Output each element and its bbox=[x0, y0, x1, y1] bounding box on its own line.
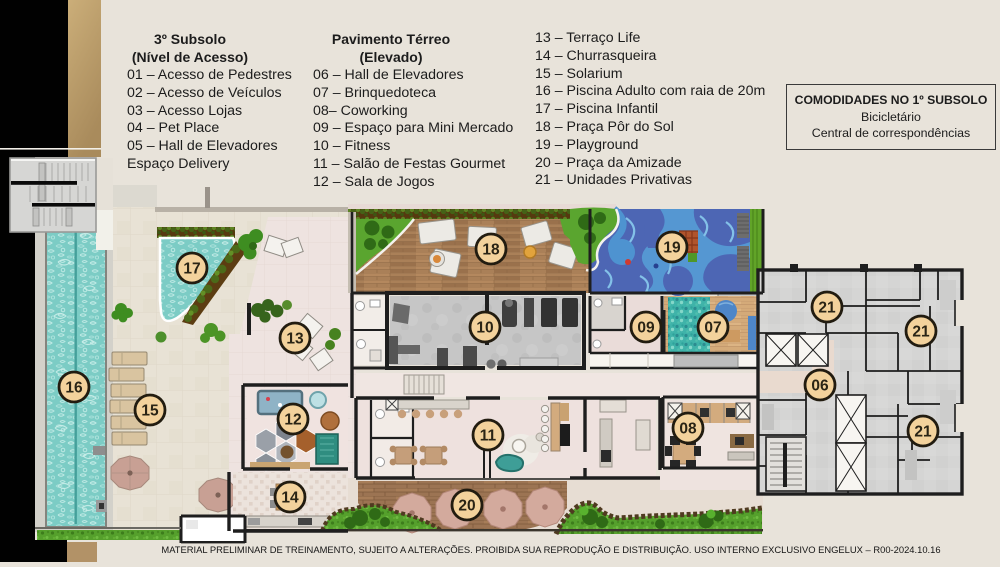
svg-text:18: 18 bbox=[482, 242, 500, 259]
svg-text:06: 06 bbox=[811, 378, 829, 395]
svg-text:21: 21 bbox=[818, 300, 836, 317]
svg-text:14: 14 bbox=[281, 490, 299, 507]
svg-text:08: 08 bbox=[679, 421, 697, 438]
svg-text:09: 09 bbox=[637, 320, 655, 337]
svg-text:13: 13 bbox=[286, 331, 304, 348]
svg-text:20: 20 bbox=[458, 498, 475, 515]
svg-text:21: 21 bbox=[912, 324, 930, 341]
svg-text:12: 12 bbox=[284, 412, 301, 429]
svg-text:19: 19 bbox=[663, 240, 681, 257]
svg-text:10: 10 bbox=[476, 320, 493, 337]
svg-text:16: 16 bbox=[65, 380, 83, 397]
svg-text:15: 15 bbox=[141, 403, 159, 420]
svg-text:21: 21 bbox=[914, 424, 932, 441]
svg-text:17: 17 bbox=[183, 261, 200, 278]
svg-text:11: 11 bbox=[480, 428, 497, 445]
svg-text:07: 07 bbox=[704, 320, 721, 337]
